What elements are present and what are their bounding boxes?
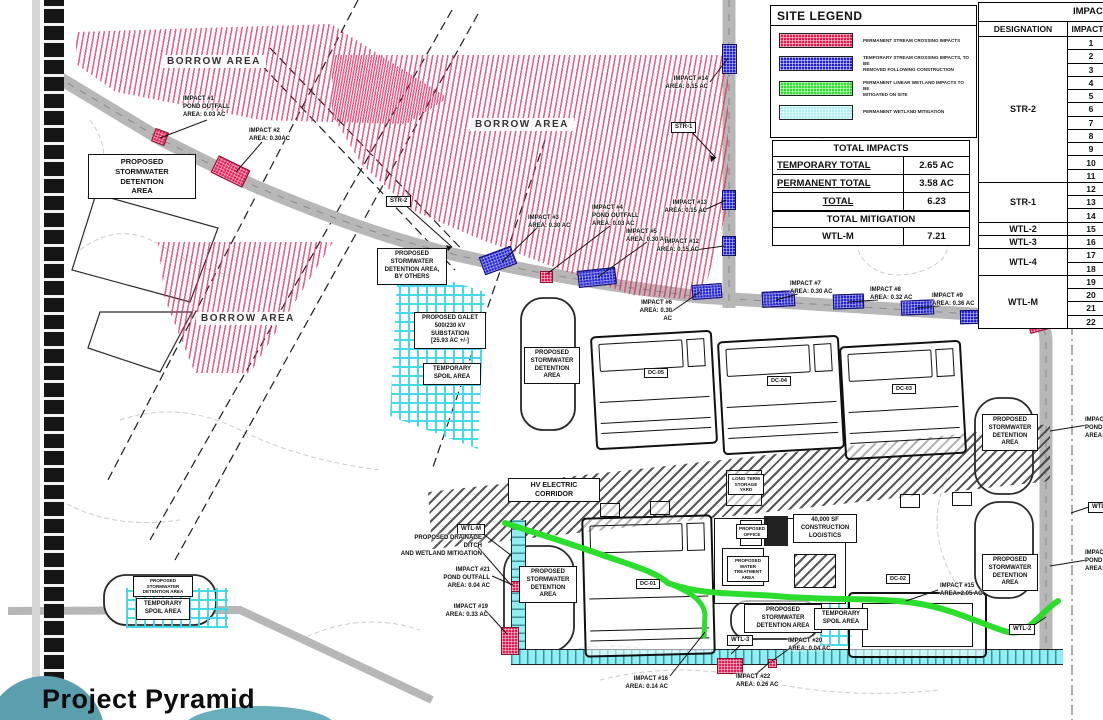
impact-patch-red — [151, 128, 169, 146]
building-dc-05 — [590, 330, 718, 451]
impact-patch-blue — [692, 283, 723, 300]
row-label: TEMPORARY TOTAL — [773, 157, 904, 174]
impact-callout-15: IMPACT #15 AREA: 2.05 AC — [940, 583, 982, 599]
impact-patch-blue — [479, 246, 517, 275]
impact-number-cell: 12 — [1068, 183, 1103, 195]
utility-stub — [900, 494, 920, 508]
detention-area-label: PROPOSED STORMWATER DETENTION AREA — [519, 566, 577, 603]
spoil-area-label: TEMPORARY SPOIL AREA — [423, 363, 481, 385]
building-dc-04 — [717, 335, 845, 456]
impact-number-cell: 7 — [1068, 116, 1103, 129]
water-treatment-label: PROPOSED WATER TREATMENT AREA — [727, 556, 769, 582]
impact-number-cell: 20 — [1068, 288, 1103, 301]
page-title: Project Pyramid — [42, 684, 255, 715]
totals-title: TOTAL IMPACTS — [773, 141, 969, 157]
designation-group-row: WTL-41718 — [979, 249, 1103, 276]
tag-wtl-3: WTL-3 — [727, 635, 753, 646]
designation-group-row: WTL-215 — [979, 223, 1103, 236]
designation-cell: WTL-3 — [979, 236, 1068, 248]
borrow-area-label: BORROW AREA — [162, 55, 266, 68]
impact-callout-4: IMPACT #4 POND OUTFALL AREA: 0.03 AC — [592, 205, 639, 228]
designation-group-row: STR-1121314 — [979, 183, 1103, 223]
impact-number-cell: 3 — [1068, 63, 1103, 76]
impact-callout-16: IMPACT #16 AREA: 0.14 AC — [622, 676, 668, 692]
borrow-area-label: BORROW AREA — [196, 312, 300, 325]
legend-label: TEMPORARY STREAM CROSSING IMPACTS, TO BE… — [863, 55, 970, 73]
impact-number-cell: 16 — [1068, 236, 1103, 248]
impact-patch-blue — [722, 236, 736, 256]
utility-stub — [650, 501, 670, 515]
tag-str-1: STR-1 — [671, 122, 696, 133]
impact-callout-8: IMPACT #8 AREA: 0.32 AC — [870, 287, 912, 303]
legend-swatch-permanent-stream — [779, 33, 853, 48]
legend-item: PERMANENT WETLAND MITIGATION — [779, 105, 970, 120]
table-row: TEMPORARY TOTAL 2.65 AC — [773, 157, 969, 175]
detention-area-label: PROPOSED STORMWATER DETENTION AREA — [982, 414, 1038, 451]
table-row: TOTAL 6.23 — [773, 193, 969, 211]
impact-number-cell: 10 — [1068, 155, 1103, 168]
impact-patch-red — [211, 155, 251, 187]
row-value: 2.65 AC — [904, 157, 969, 174]
impact-patch-blue — [722, 44, 737, 74]
legend-label: PERMANENT STREAM CROSSING IMPACTS — [863, 38, 960, 44]
column-impact-number: IMPACT # — [1068, 22, 1103, 36]
detention-by-others-label: PROPOSED STORMWATER DETENTION AREA, BY O… — [377, 248, 447, 285]
impact-number-cell: 6 — [1068, 102, 1103, 115]
storage-yard-label: LONG TERM STORAGE YARD — [728, 474, 764, 495]
legend-item: TEMPORARY STREAM CROSSING IMPACTS, TO BE… — [779, 55, 970, 73]
impact-callout-22: IMPACT #22 AREA: 0.26 AC — [736, 674, 778, 690]
legend-label: PERMANENT WETLAND MITIGATION — [863, 109, 944, 115]
impact-number-cell: 2 — [1068, 49, 1103, 62]
legend-title: SITE LEGEND — [771, 6, 976, 26]
impact-number-cell: 13 — [1068, 195, 1103, 208]
table-row: WTL-M 7.21 — [773, 228, 969, 245]
column-designation: DESIGNATION — [979, 22, 1068, 36]
impact-callout-1: IMPACT #1 POND OUTFALL AREA: 0.03 AC — [183, 96, 230, 119]
impact-number-cell: 18 — [1068, 262, 1103, 275]
impact-callout-12: IMPACT #12 AREA: 0.15 AC — [655, 239, 699, 255]
impact-number-cell: 17 — [1068, 249, 1103, 261]
mitigation-title: TOTAL MITIGATION — [773, 211, 969, 228]
designation-cell: WTL-2 — [979, 223, 1068, 235]
impact-patch-red — [540, 271, 553, 283]
borrow-area-west — [155, 240, 335, 375]
impact-patch-blue — [833, 293, 865, 309]
construction-logistics-label: 40,000 SF CONSTRUCTION LOGISTICS — [793, 514, 857, 543]
impact-patch-red — [717, 658, 743, 674]
impact-callout-edge-2: IMPACT POND AREA: — [1085, 550, 1103, 573]
utility-stub — [600, 503, 620, 517]
drainage-ditch-label: PROPOSED DRAINAGE DITCH AND WETLAND MITI… — [398, 535, 482, 558]
designation-group-row: WTL-M19202122 — [979, 276, 1103, 328]
impact-number-cell: 9 — [1068, 142, 1103, 155]
railroad-corridor — [44, 0, 64, 720]
legend-swatch-linear-wetland — [779, 81, 853, 96]
impact-number-cell: 1 — [1068, 37, 1103, 49]
logistics-yard — [794, 554, 836, 588]
impact-number-cell: 15 — [1068, 223, 1103, 235]
building-dc-03 — [839, 340, 967, 461]
building-dc-02 — [848, 592, 987, 658]
legend-item: PERMANENT STREAM CROSSING IMPACTS — [779, 33, 970, 48]
impact-table-header: IMPACT — [979, 3, 1103, 22]
designation-cell: WTL-4 — [979, 249, 1068, 275]
impact-number-cell: 8 — [1068, 129, 1103, 142]
impact-designation-table: IMPACT DESIGNATION IMPACT # STR-21234567… — [978, 2, 1103, 329]
impact-number-cell: 4 — [1068, 76, 1103, 89]
impact-patch-red — [768, 659, 777, 668]
building-tag-dc-03: DC-03 — [892, 384, 916, 394]
total-impacts-table: TOTAL IMPACTS TEMPORARY TOTAL 2.65 AC PE… — [772, 140, 970, 246]
impact-patch-blue — [722, 190, 736, 210]
designation-cell: WTL-M — [979, 276, 1068, 328]
impact-callout-19: IMPACT #19 AREA: 0.33 AC — [440, 604, 488, 620]
impact-callout-3: IMPACT #3 AREA: 0.30 AC — [528, 215, 570, 231]
impact-table-body: STR-21234567891011STR-1121314WTL-215WTL-… — [979, 37, 1103, 328]
impact-callout-6: IMPACT #6 AREA: 0.30 AC — [630, 300, 672, 323]
impact-callout-edge-1: IMPACT POND AREA: — [1085, 417, 1103, 440]
detention-area-label: PROPOSED STORMWATER DETENTION AREA — [88, 154, 196, 199]
designation-cell: STR-2 — [979, 37, 1068, 182]
tag-wtl-4: WTL — [1088, 502, 1103, 513]
borrow-area-label: BORROW AREA — [470, 118, 574, 131]
hv-corridor-label: HV ELECTRIC CORRIDOR — [508, 478, 600, 502]
spoil-area-label: TEMPORARY SPOIL AREA — [136, 598, 190, 620]
table-row: PERMANENT TOTAL 3.58 AC — [773, 175, 969, 193]
legend-swatch-wetland-mitigation — [779, 105, 853, 120]
tag-str-2: STR-2 — [386, 196, 411, 207]
row-label: TOTAL — [773, 193, 904, 210]
building-tag-dc-05: DC-05 — [644, 368, 668, 378]
legend-swatch-temporary-stream — [779, 56, 853, 71]
impact-callout-21: IMPACT #21 POND OUTFALL AREA: 0.04 AC — [430, 567, 490, 590]
utility-stub — [952, 492, 972, 506]
substation-area — [390, 264, 485, 449]
spoil-area-label: TEMPORARY SPOIL AREA — [814, 608, 868, 630]
impact-callout-14: IMPACT #14 AREA: 0.15 AC — [660, 76, 708, 92]
impact-callout-9: IMPACT #9 AREA: 0.36 AC — [932, 293, 974, 309]
row-label: WTL-M — [773, 228, 904, 245]
impact-number-cell: 14 — [1068, 208, 1103, 221]
designation-group-row: WTL-316 — [979, 236, 1103, 249]
detention-area-label: PROPOSED STORMWATER DETENTION AREA — [524, 347, 580, 384]
row-value: 3.58 AC — [904, 175, 969, 192]
building-tag-dc-02: DC-02 — [886, 574, 910, 584]
impact-number-cell: 5 — [1068, 89, 1103, 102]
row-value: 7.21 — [904, 228, 969, 245]
detention-area-label: PROPOSED STORMWATER DETENTION AREA — [133, 576, 193, 597]
impact-number-cell: 11 — [1068, 169, 1103, 182]
impact-callout-13: IMPACT #13 AREA: 0.15 AC — [663, 200, 707, 216]
impact-callout-20: IMPACT #20 AREA: 0.04 AC — [788, 638, 830, 654]
impact-callout-2: IMPACT #2 AREA: 0.30AC — [249, 128, 290, 144]
detention-area-label: PROPOSED STORMWATER DETENTION AREA — [982, 554, 1038, 591]
impact-patch-red — [501, 627, 519, 655]
row-value: 6.23 — [904, 193, 969, 210]
legend-item: PERMANENT LINEAR WETLAND IMPACTS TO BE M… — [779, 80, 970, 98]
building-tag-dc-01: DC-01 — [636, 579, 660, 589]
tag-wtl-m: WTL-M — [457, 524, 485, 535]
impact-table-columns: DESIGNATION IMPACT # — [979, 22, 1103, 37]
impact-callout-7: IMPACT #7 AREA: 0.30 AC — [790, 281, 832, 297]
detention-area-label: PROPOSED STORMWATER DETENTION AREA — [744, 604, 822, 633]
left-edge-band — [32, 0, 40, 720]
impact-number-cell: 19 — [1068, 276, 1103, 288]
legend-label: PERMANENT LINEAR WETLAND IMPACTS TO BE M… — [863, 80, 970, 98]
impact-number-cell: 22 — [1068, 315, 1103, 328]
site-plan-sheet: BORROW AREA BORROW AREA BORROW AREA PROP… — [0, 0, 1103, 720]
site-legend: SITE LEGEND PERMANENT STREAM CROSSING IM… — [770, 5, 977, 138]
designation-group-row: STR-21234567891011 — [979, 37, 1103, 183]
office-label: PROPOSED OFFICE — [736, 524, 768, 539]
row-label: PERMANENT TOTAL — [773, 175, 904, 192]
substation-label: PROPOSED GALET 500/230 kV SUBSTATION [25… — [414, 312, 486, 349]
impact-number-cell: 21 — [1068, 301, 1103, 314]
designation-cell: STR-1 — [979, 183, 1068, 222]
tag-wtl-2: WTL-2 — [1009, 624, 1035, 635]
building-tag-dc-04: DC-04 — [767, 376, 791, 386]
